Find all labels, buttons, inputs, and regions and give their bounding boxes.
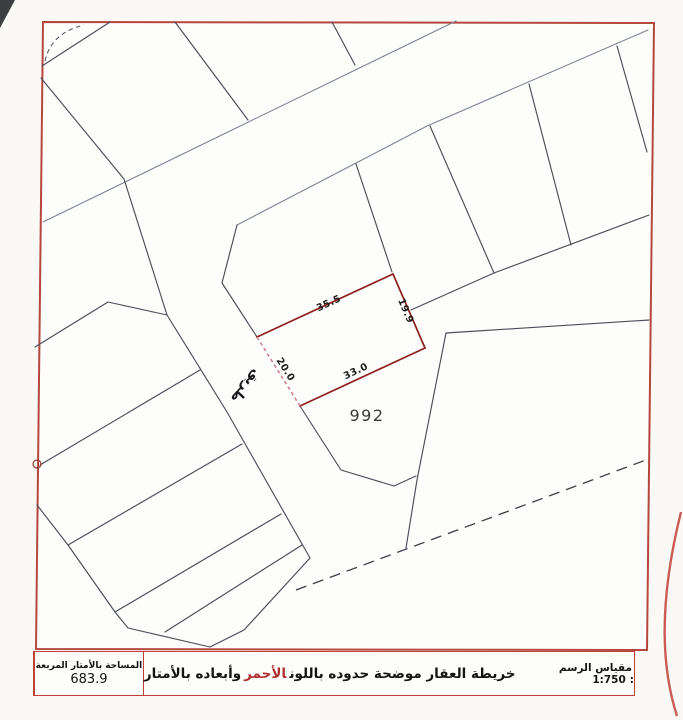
map-red-border — [36, 22, 654, 650]
note-before: خريطة العقار موضحة حدوده باللون — [289, 666, 515, 682]
note-after: وأبعاده بالأمتار — [144, 666, 241, 682]
note-red-word: الأحمر — [241, 666, 289, 682]
map-note-text: خريطة العقار موضحة حدوده باللونالأحمروأب… — [144, 666, 516, 682]
plot-number-992: 992 — [349, 406, 384, 425]
stamp-arc-partial-circle — [665, 512, 681, 716]
scanned-cadastral-map-page: 35.5 19.9 20.0 33.0 992 طريق المساحة بال… — [0, 0, 683, 720]
scan-edge-artifact — [0, 0, 15, 28]
scale-value: 1:750 — [590, 674, 627, 686]
area-label: المساحة بالأمتار المربعة — [36, 661, 143, 671]
area-value: 683.9 — [70, 672, 107, 687]
area-cell: المساحة بالأمتار المربعة 683.9 — [34, 652, 143, 695]
map-note-cell: خريطة العقار موضحة حدوده باللونالأحمروأب… — [143, 652, 516, 695]
scale-cell: مقياس الرسم :1:750 — [516, 652, 634, 695]
cadastral-map-canvas: 35.5 19.9 20.0 33.0 992 طريق — [0, 0, 683, 720]
scale-text: مقياس الرسم :1:750 — [516, 662, 634, 686]
footer-info-table: المساحة بالأمتار المربعة 683.9 خريطة الع… — [33, 651, 635, 696]
